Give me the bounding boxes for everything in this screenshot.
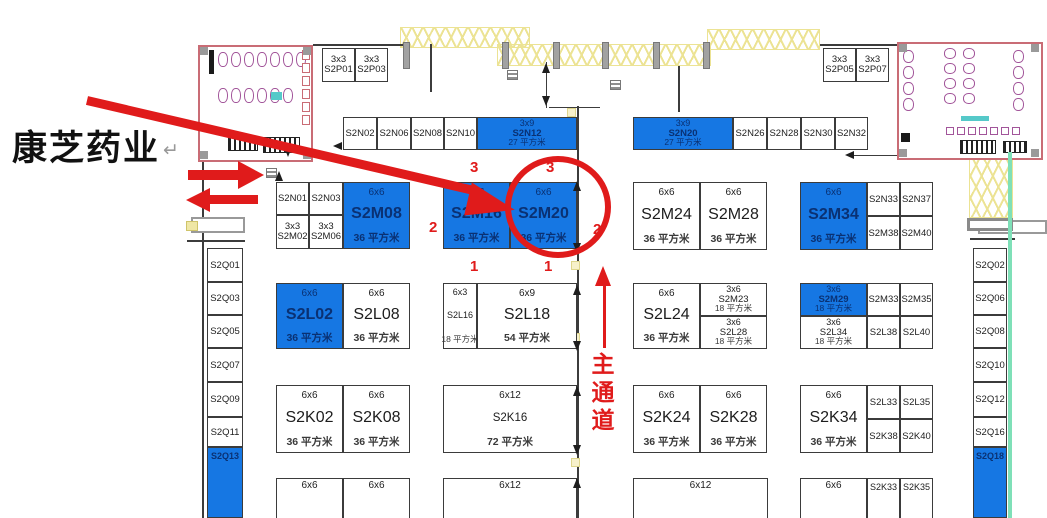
booth-s2q08: S2Q08 [973,315,1007,348]
booth-id: S2L18 [504,306,550,324]
booth-id: S2K34 [809,409,857,427]
booth-id: S2Q03 [210,293,240,304]
booth-size: 6x6 [825,390,841,401]
booth-s2q06: S2Q06 [973,282,1007,315]
booth-s2q16: S2Q16 [973,417,1007,447]
booth-area: 36 平方米 [353,330,399,345]
booth-id: S2N02 [345,128,374,139]
booth-id: S2K08 [352,409,400,427]
booth-area: 36 平方米 [643,330,689,345]
booth-s2n20: 3x9S2N2027 平方米 [633,117,733,150]
booth-s2m35: S2M35 [900,283,933,316]
restroom-fixture-icon [1013,98,1024,111]
floor-plan: 康芝药业↵ 主 通 道 3x3S2P013x3S2P033x3S2P053x3S… [0,0,1047,518]
wall-line [430,44,432,92]
restroom-fixture-icon [944,63,956,74]
booth-s2n10: S2N10 [444,117,477,150]
side-wall-line [1008,152,1012,518]
booth-size: 6x12 [690,480,712,491]
booth-size: 6x6 [658,187,674,198]
main-aisle-arrow-shaft [603,284,607,348]
restroom-fixture-icon [270,52,280,67]
booth-s2k40: S2K40 [900,419,933,453]
direction-arrow-icon [573,285,581,295]
direction-arrow-icon [845,151,854,159]
restroom-fixture-icon [1013,50,1024,63]
restroom-fixture-icon [271,92,282,100]
entrance-arrow-right-icon [188,170,240,180]
booth-id: S2K24 [642,409,690,427]
booth-outline: 6x6 [343,478,410,518]
booth-s2l02: 6x6S2L0236 平方米 [276,283,343,349]
restroom-fixture-icon [209,50,214,74]
hatch-marker [507,70,518,80]
booth-s2l35: S2L35 [900,385,933,419]
booth-id: S2Q12 [975,394,1005,405]
booth-area: 18 平方米 [715,337,752,347]
direction-arrow-icon [333,142,342,150]
booth-id: S2Q08 [975,326,1005,337]
restroom-fixture-icon [899,149,907,157]
direction-arrow-icon [275,171,283,181]
booth-area: 27 平方米 [664,138,701,148]
booth-id: S2Q06 [975,293,1005,304]
booth-s2k16: 6x12S2K1672 平方米 [443,385,577,453]
booth-s2l16: 6x3S2L1618 平方米 [443,283,477,349]
booth-area: 18 平方米 [815,337,852,347]
booth-area: 36 平方米 [286,330,332,345]
booth-s2k28: 6x6S2K2836 平方米 [700,385,767,453]
booth-size: 6x12 [499,480,521,491]
main-aisle-char: 道 [589,408,617,432]
wall-line [202,160,204,518]
restroom-fixture-icon [1013,66,1024,79]
restroom-fixture-icon [302,102,310,112]
booth-id: S2Q07 [210,360,240,371]
booth-area: 36 平方米 [810,231,856,246]
booth-id: S2P03 [357,65,386,76]
booth-s2m29: 3x6S2M2918 平方米 [800,283,867,316]
booth-s2n30: S2N30 [801,117,835,150]
aisle-marker-dot [567,108,576,117]
booth-id: S2K38 [869,431,898,442]
booth-size: 6x6 [725,390,741,401]
booth-id: S2M06 [311,232,341,243]
wall-opening [191,217,245,233]
booth-s2l08: 6x6S2L0836 平方米 [343,283,410,349]
booth-s2n08: S2N08 [411,117,444,150]
restroom-fixture-icon [218,88,228,103]
direction-arrow-icon [573,341,581,351]
wall-opening [186,221,198,231]
booth-s2n01: S2N01 [276,182,309,215]
booth-s2m23: 3x6S2M2318 平方米 [700,283,767,316]
direction-arrow-icon [573,478,581,488]
restroom-fixture-icon [200,151,208,159]
restroom-fixture-icon [1001,127,1009,135]
booth-s2q02: S2Q02 [973,248,1007,282]
restroom-fixture-icon [283,52,293,67]
booth-size: 6x6 [658,390,674,401]
booth-area: 72 平方米 [487,434,533,449]
booth-id: S2L35 [903,397,930,408]
booth-area: 36 平方米 [710,231,756,246]
restroom-fixture-icon [302,115,310,125]
booth-s2m06: 3x3S2M06 [309,215,343,249]
booth-id: S2N37 [902,194,931,205]
restroom-fixture-icon [961,116,989,121]
booth-id: S2M40 [901,228,931,239]
restroom-fixture-icon [901,133,910,142]
ceiling-truss [969,156,1013,218]
booth-id: S2Q05 [210,326,240,337]
booth-s2k38: S2K38 [867,419,900,453]
red-marker: 1 [544,258,552,275]
aisle-marker-dot [571,261,580,270]
main-aisle-char: 主 [589,352,617,376]
booth-id: S2Q16 [975,427,1005,438]
booth-s2q03: S2Q03 [207,282,243,315]
booth-id: S2L24 [643,306,689,324]
booth-s2p05: 3x3S2P05 [823,48,856,82]
booth-s2l24: 6x6S2L2436 平方米 [633,283,700,349]
booth-id: S2K33 [870,482,897,492]
booth-id: S2N32 [837,128,866,139]
pillar [502,42,509,69]
booth-s2l38: S2L38 [867,316,900,349]
restroom-fixture-icon [303,47,311,55]
booth-s2n28: S2N28 [767,117,801,150]
pillar [602,42,609,69]
booth-id: S2M08 [351,205,402,223]
booth-s2m28: 6x6S2M2836 平方米 [700,182,767,250]
restroom-fixture-icon [200,47,208,55]
booth-id: S2N10 [446,128,475,139]
booth-area: 18 平方米 [815,304,852,314]
booth-area: 27 平方米 [508,138,545,148]
booth-id: S2K35 [903,482,930,492]
highlight-circle [505,156,611,258]
restroom-fixture-icon [1031,44,1039,52]
booth-s2k02: 6x6S2K0236 平方米 [276,385,343,453]
booth-id: S2L40 [903,327,930,338]
booth-outline: 6x12 [443,478,577,518]
booth-s2q09: S2Q09 [207,382,243,417]
booth-area: 18 平方米 [441,333,478,345]
booth-id: S2L08 [353,306,399,324]
booth-s2n32: S2N32 [835,117,868,150]
booth-id: S2K40 [902,431,931,442]
booth-id: S2Q18 [976,451,1004,461]
booth-s2q11: S2Q11 [207,417,243,447]
booth-size: 6x6 [368,187,384,198]
pillar [703,42,710,69]
booth-size: 6x6 [368,390,384,401]
restroom-fixture-icon [1013,82,1024,95]
booth-s2n02: S2N02 [343,117,377,150]
restroom-fixture-icon [283,88,293,103]
booth-s2m08: 6x6S2M0836 平方米 [343,182,410,249]
restroom-fixture-icon [903,98,914,111]
booth-size: 6x6 [658,288,674,299]
booth-area: 36 平方米 [353,434,399,449]
booth-outline: 6x6 [800,478,867,518]
restroom-fixture-icon [1031,149,1039,157]
booth-area: 18 平方米 [715,304,752,314]
restroom-fixture-icon [946,127,954,135]
booth-size: 6x6 [301,480,317,491]
restroom-fixture-icon [231,88,241,103]
restroom-fixture-icon [960,140,996,154]
booth-s2k08: 6x6S2K0836 平方米 [343,385,410,453]
restroom-fixture-icon [899,44,907,52]
restroom-fixture-icon [244,52,254,67]
red-marker: 1 [470,258,478,275]
booth-size: 6x6 [368,288,384,299]
booth-id: S2Q01 [210,260,240,271]
restroom-fixture-icon [903,66,914,79]
aisle-marker-dot [571,458,580,467]
booth-size: 6x6 [825,187,841,198]
direction-arrow-icon [573,445,581,455]
restroom-fixture-icon [990,127,998,135]
booth-id: S2M02 [277,232,307,243]
booth-s2m38: S2M38 [867,216,900,250]
restroom-fixture-icon [302,63,310,73]
booth-id: S2M33 [868,294,898,305]
wall-line [313,44,403,46]
company-annotation-label: 康芝药业↵ [12,120,179,171]
booth-id: S2K28 [709,409,757,427]
wall-opening [967,218,1013,231]
booth-s2q10: S2Q10 [973,348,1007,382]
booth-s2q13: S2Q13 [207,447,243,518]
booth-id: S2N26 [735,128,764,139]
entrance-arrow-left-icon [209,195,258,204]
restroom-fixture-icon [1003,141,1027,153]
booth-s2l18: 6x9S2L1854 平方米 [477,283,577,349]
booth-s2n26: S2N26 [733,117,767,150]
booth-id: S2M35 [901,294,931,305]
booth-s2k35: S2K35 [900,478,933,518]
booth-s2n03: S2N03 [309,182,343,215]
booth-id: S2N33 [869,194,898,205]
company-name: 康芝药业 [12,129,160,168]
restroom-fixture-icon [903,82,914,95]
booth-area: 36 平方米 [643,231,689,246]
booth-id: S2N01 [278,193,307,204]
red-marker: 3 [470,159,478,176]
booth-s2q18: S2Q18 [973,447,1007,518]
booth-size: 6x9 [519,288,535,299]
restroom-fixture-icon [244,88,254,103]
booth-s2n37: S2N37 [900,182,933,216]
booth-id: S2Q02 [975,260,1005,271]
restroom-fixture-icon [944,48,956,59]
hatch-marker [610,80,621,90]
restroom-fixture-icon [963,48,975,59]
booth-id: S2M38 [868,228,898,239]
direction-arrow-icon [542,63,550,73]
booth-s2k34: 6x6S2K3436 平方米 [800,385,867,453]
booth-s2p03: 3x3S2P03 [355,48,388,82]
restroom-fixture-icon [257,88,267,103]
booth-s2l33: S2L33 [867,385,900,419]
booth-size: 6x12 [499,390,521,401]
booth-size: 6x6 [825,480,841,491]
booth-size: 6x6 [368,480,384,491]
restroom-fixture-icon [963,63,975,74]
wall-line [678,66,680,112]
booth-id: S2P07 [858,65,887,76]
wall-line [187,240,245,242]
pillar [403,42,410,69]
booth-s2l40: S2L40 [900,316,933,349]
booth-area: 36 平方米 [643,434,689,449]
booth-id: S2K16 [493,412,528,424]
booth-size: 6x6 [301,390,317,401]
booth-size: 6x6 [725,187,741,198]
restroom-fixture-icon [963,78,975,89]
booth-id: S2Q13 [211,451,239,461]
ceiling-truss [707,29,820,50]
restroom-fixture-icon [979,127,987,135]
restroom-fixture-icon [231,52,241,67]
booth-id: S2K02 [285,409,333,427]
booth-s2m34: 6x6S2M3436 平方米 [800,182,867,250]
booth-area: 36 平方米 [810,434,856,449]
booth-size: 6x6 [301,288,317,299]
booth-s2q12: S2Q12 [973,382,1007,417]
booth-outline: 6x12 [633,478,768,518]
entrance-arrow-right-head-icon [238,161,264,189]
booth-id: S2N30 [803,128,832,139]
booth-size: 6x3 [453,287,468,297]
booth-s2p01: 3x3S2P01 [322,48,355,82]
wall-line [854,155,897,156]
booth-s2l28: 3x6S2L2818 平方米 [700,316,767,349]
pillar [553,42,560,69]
return-mark: ↵ [163,140,179,161]
direction-arrow-icon [542,96,550,106]
booth-s2n33: S2N33 [867,182,900,216]
booth-area: 36 平方米 [453,230,499,245]
booth-s2q01: S2Q01 [207,248,243,282]
booth-id: S2N28 [769,128,798,139]
restroom-fixture-icon [944,78,956,89]
booth-id: S2Q11 [211,427,240,438]
booth-id: S2Q10 [975,360,1005,371]
red-marker: 2 [429,219,437,236]
booth-area: 36 平方米 [286,434,332,449]
restroom-fixture-icon [957,127,965,135]
restroom-fixture-icon [257,52,267,67]
booth-id: S2L02 [286,306,333,324]
restroom-fixture-icon [963,93,975,104]
booth-id: S2N03 [311,193,340,204]
booth-id: S2M34 [808,206,859,224]
booth-area: 36 平方米 [710,434,756,449]
booth-id: S2N06 [379,128,408,139]
booth-id: S2N08 [413,128,442,139]
booth-area: 54 平方米 [504,330,550,345]
restroom-fixture-icon [302,89,310,99]
booth-id: S2M28 [708,206,759,224]
booth-id: S2M24 [641,206,692,224]
booth-s2m24: 6x6S2M2436 平方米 [633,182,700,250]
booth-s2k24: 6x6S2K2436 平方米 [633,385,700,453]
booth-s2l34: 3x6S2L3418 平方米 [800,316,867,349]
booth-s2m40: S2M40 [900,216,933,250]
booth-outline: 6x6 [276,478,343,518]
restroom-fixture-icon [968,127,976,135]
restroom-fixture-icon [1012,127,1020,135]
booth-s2n06: S2N06 [377,117,411,150]
booth-id: S2L38 [870,327,897,338]
direction-arrow-icon [573,386,581,396]
booth-s2n12: 3x9S2N1227 平方米 [477,117,577,150]
wall-line [820,44,897,46]
restroom-fixture-icon [944,93,956,104]
main-aisle-char: 通 [589,380,617,404]
booth-s2p07: 3x3S2P07 [856,48,889,82]
booth-area: 36 平方米 [353,230,399,245]
booth-id: S2P05 [825,65,854,76]
booth-s2m02: 3x3S2M02 [276,215,309,249]
booth-id: S2L16 [447,310,473,320]
booth-s2k33: S2K33 [867,478,900,518]
booth-s2m33: S2M33 [867,283,900,316]
booth-id: S2P01 [324,65,353,76]
booth-id: S2L33 [870,397,897,408]
main-aisle-arrow-icon [595,266,611,286]
restroom-fixture-icon [218,52,228,67]
booth-s2q05: S2Q05 [207,315,243,348]
main-aisle-label: 主 通 道 [589,352,617,432]
booth-s2q07: S2Q07 [207,348,243,382]
pillar [653,42,660,69]
booth-id: S2Q09 [210,394,240,405]
restroom-fixture-icon [302,76,310,86]
entrance-arrow-left-head-icon [186,188,210,212]
